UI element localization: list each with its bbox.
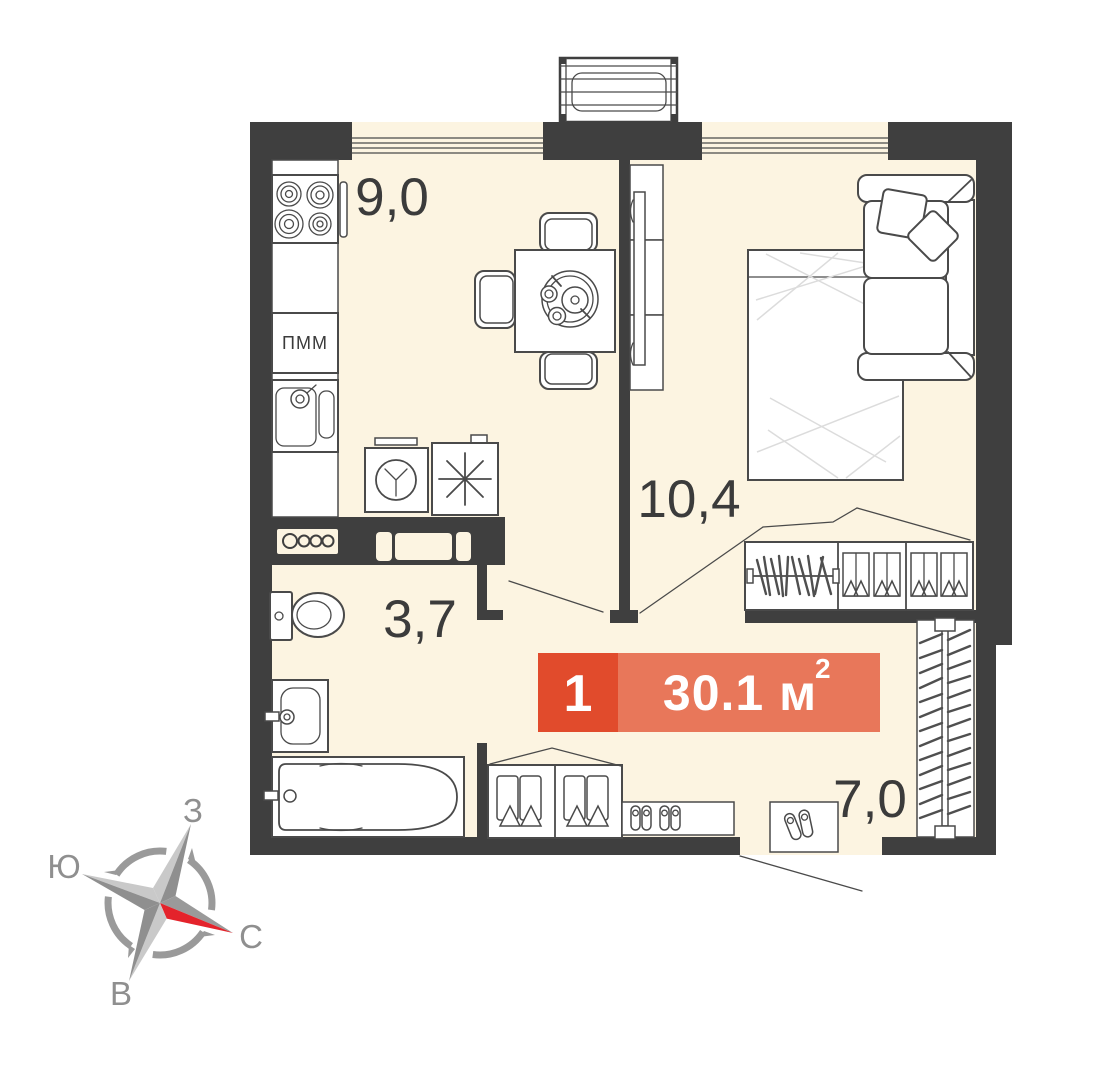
fridge-icon (432, 435, 498, 515)
floorplan-svg: ПММ (0, 0, 1097, 1066)
floorplan-page: ПММ (0, 0, 1097, 1066)
dishwasher-icon: ПММ (272, 313, 338, 373)
window-living-room (702, 122, 888, 160)
ac-unit-icon (559, 57, 678, 122)
compass-west-label: З (183, 792, 203, 829)
toilet-icon (270, 592, 344, 640)
dishwasher-label: ПММ (282, 333, 328, 353)
coat-rack-icon (917, 618, 974, 839)
wardrobe-hall-icon (488, 765, 622, 838)
entrance-door-line (740, 856, 862, 891)
area-label-living-room: 10,4 (637, 470, 740, 529)
dining-table-icon (515, 250, 615, 352)
compass-south-label: Ю (47, 848, 80, 885)
sofa-icon (858, 175, 974, 380)
shoe-box-icon (770, 802, 838, 852)
badge-area-superscript: 2 (815, 653, 831, 684)
bathroom-sink-icon (265, 680, 328, 752)
area-label-hallway: 7,0 (833, 770, 907, 829)
badge-area-value: 30.1 м (663, 665, 817, 721)
compass-north-label: С (239, 918, 263, 955)
tv-console-icon (630, 165, 663, 390)
bathtub-icon (264, 757, 464, 837)
compass-east-label: В (110, 975, 132, 1012)
wardrobe-living-icon (745, 542, 973, 610)
area-label-bathroom: 3,7 (383, 590, 457, 649)
sliding-door-icon (376, 532, 471, 561)
kitchen-sink-icon (272, 380, 338, 452)
utility-riser-icon (277, 529, 338, 554)
apartment-badge: 1 30.1 м 2 (538, 653, 880, 732)
shoe-rack-icon (622, 802, 734, 835)
badge-rooms-count: 1 (564, 665, 593, 723)
compass-rose: З Ю С В (47, 792, 263, 1012)
washing-machine-icon (365, 438, 428, 512)
area-label-kitchen: 9,0 (355, 168, 429, 227)
stove-icon (272, 175, 347, 243)
window-kitchen (352, 122, 543, 160)
